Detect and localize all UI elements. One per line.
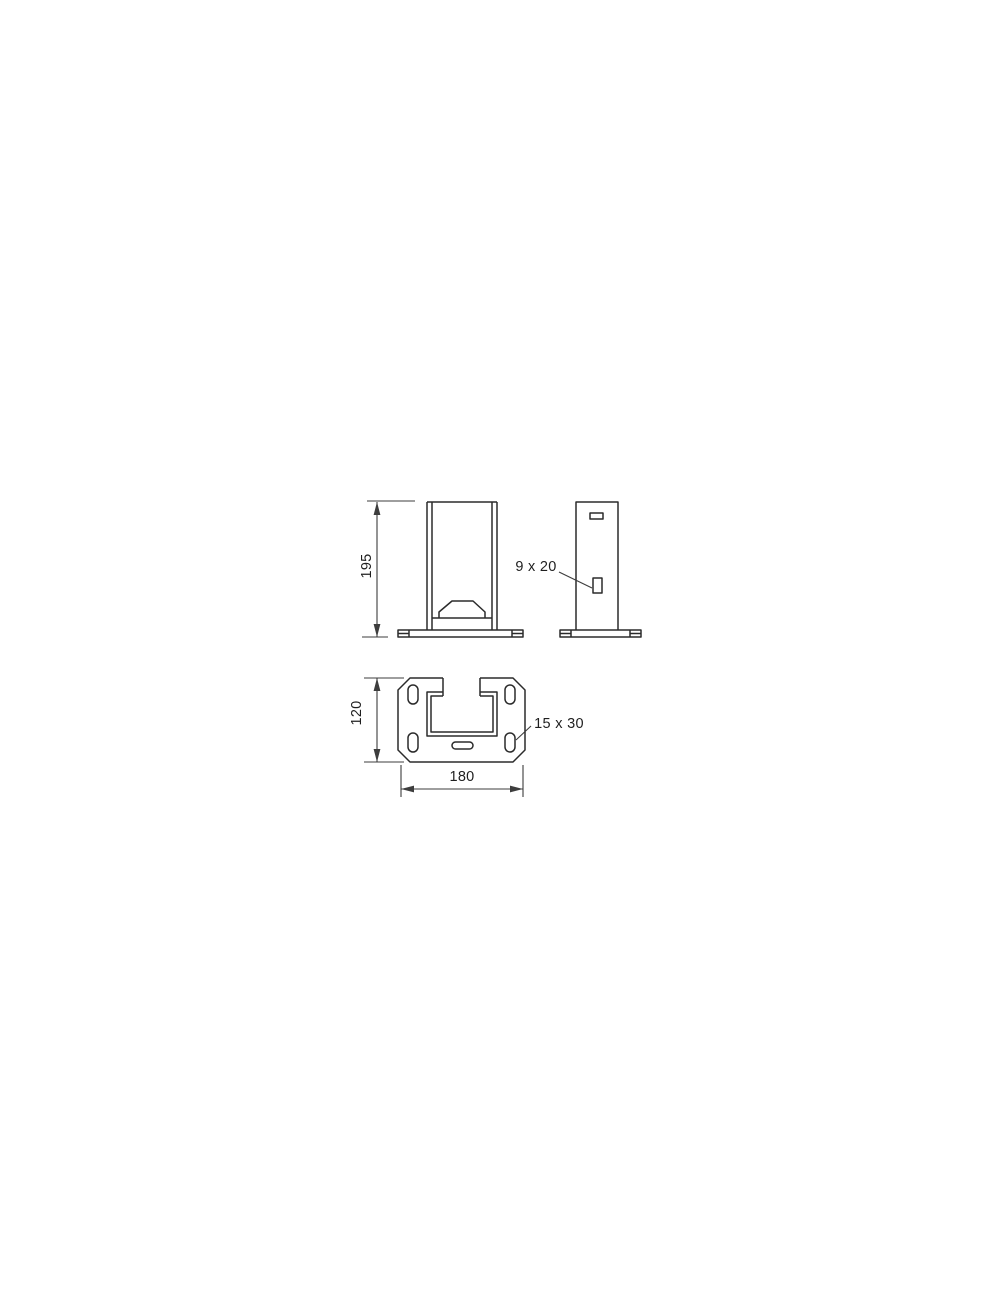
side-mid-slot <box>593 578 602 593</box>
width-arrow-left <box>401 786 414 793</box>
depth-dim-label: 120 <box>349 700 365 725</box>
channel-section-outer <box>427 692 497 736</box>
top-view: 15 x 30 <box>398 678 584 762</box>
side-slot-label: 9 x 20 <box>515 559 556 575</box>
side-plate-left-slot-edge <box>560 630 571 637</box>
width-dim-label: 180 <box>449 769 474 785</box>
plate-slot-top-left <box>408 685 418 704</box>
depth-arrow-top <box>374 678 381 691</box>
front-view <box>398 502 523 637</box>
side-top-slot <box>590 513 603 519</box>
height-dim-label: 195 <box>359 553 375 578</box>
channel-section-inner <box>431 696 493 732</box>
side-base-plate <box>560 630 641 637</box>
side-view: 9 x 20 <box>515 502 641 637</box>
depth-arrow-bottom <box>374 749 381 762</box>
page: 195 9 x 20 15 x 30 <box>0 0 1000 1300</box>
technical-drawing-canvas: 195 9 x 20 15 x 30 <box>0 0 1000 1300</box>
front-embossed-hump <box>439 601 485 618</box>
height-arrow-top <box>374 502 381 515</box>
front-plate-left-slot-edge <box>398 630 409 637</box>
plate-slot-bottom-right <box>505 733 515 752</box>
depth-dimension: 120 <box>349 678 404 762</box>
width-arrow-right <box>510 786 523 793</box>
side-plate-right-slot-edge <box>630 630 641 637</box>
plate-slot-top-right <box>505 685 515 704</box>
front-base-plate <box>398 630 523 637</box>
height-arrow-bottom <box>374 624 381 637</box>
width-dimension: 180 <box>401 765 523 797</box>
plate-slot-bottom-left <box>408 733 418 752</box>
plate-center-oval-slot <box>452 742 473 749</box>
front-plate-right-slot-edge <box>512 630 523 637</box>
height-dimension: 195 <box>359 501 415 637</box>
side-post-outline <box>576 502 618 630</box>
plate-slot-label: 15 x 30 <box>534 716 584 732</box>
plate-slot-leader-line <box>516 726 531 740</box>
